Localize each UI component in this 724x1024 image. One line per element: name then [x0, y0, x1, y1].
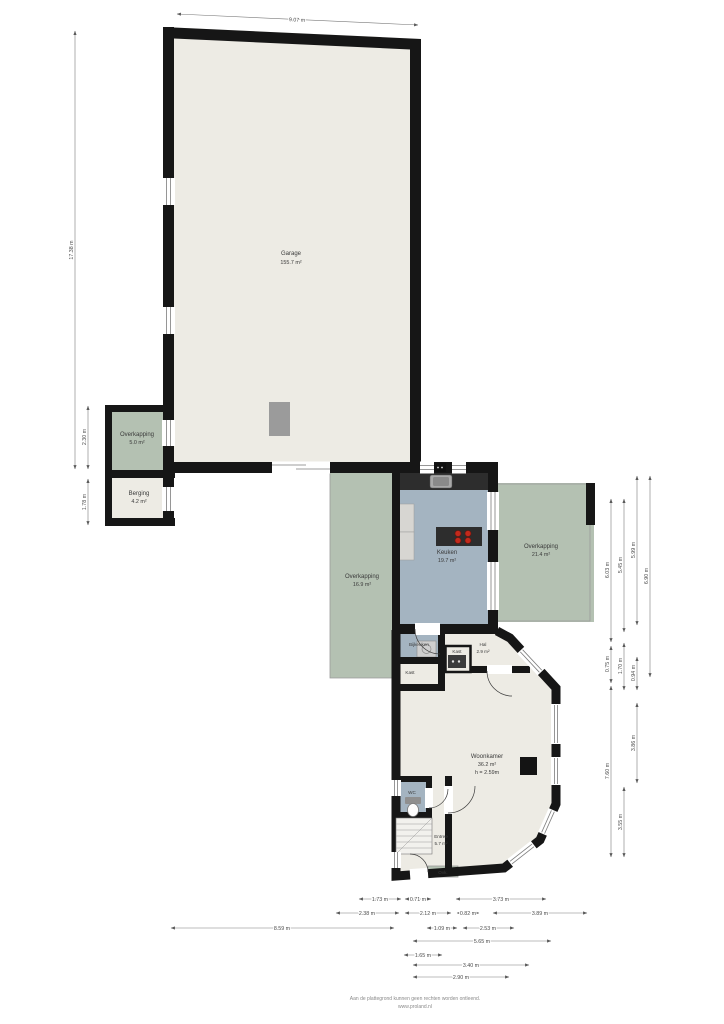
floor-plan-page: Garage 155.7 m² Overkapping 5.0 m² Bergi…: [0, 0, 724, 1024]
burner-icon: [465, 531, 471, 537]
dimension-top-width: 9.07 m: [177, 14, 418, 25]
svg-text:2.30 m: 2.30 m: [82, 428, 88, 445]
dimension-right-9: 6.90 m: [644, 476, 650, 677]
kitchen-cabinet-upper: [399, 504, 414, 532]
dimension-left-overkapping: 2.30 m: [82, 406, 88, 469]
svg-text:6.03 m: 6.03 m: [605, 561, 611, 578]
ovk-label: Ovk.: [438, 870, 447, 875]
dimension-right-7: 0.94 m: [631, 657, 637, 690]
entree-label: Entree: [434, 834, 448, 839]
svg-text:1.73 m: 1.73 m: [372, 897, 389, 903]
dimension-left-total: 17.38 m: [69, 31, 75, 469]
dimension-bottom-2: 3.73 m: [456, 897, 546, 903]
dimension-left-berging: 1.78 m: [82, 479, 88, 525]
keuken-label: Keuken: [437, 550, 457, 556]
wc-label: WC: [408, 790, 416, 795]
bijkeuken-label: Bijkeuken: [409, 642, 429, 647]
oven-knob: [458, 660, 460, 662]
dimension-right-5: 3.55 m: [618, 787, 624, 857]
burner-icon: [455, 531, 461, 537]
dimension-right-2: 7.60 m: [605, 686, 611, 857]
burner-icon: [465, 538, 471, 544]
stove-icon: [520, 757, 537, 775]
woonkamer-height: h = 2.59m: [475, 770, 500, 776]
svg-text:0.94 m: 0.94 m: [631, 664, 637, 681]
svg-text:5.45 m: 5.45 m: [618, 556, 624, 573]
svg-text:2.90 m: 2.90 m: [453, 975, 470, 981]
dimension-right-3: 5.45 m: [618, 499, 624, 632]
overkapping-mid-label: Overkapping: [345, 574, 379, 580]
dimension-bottom-11: 1.65 m: [404, 953, 442, 959]
burner-icon: [455, 538, 461, 544]
svg-text:5.99 m: 5.99 m: [631, 541, 637, 558]
hal-label: Hal: [480, 642, 487, 647]
berging-bottom-wall: [105, 518, 175, 526]
overkapping-small-label: Overkapping: [120, 432, 154, 438]
dimension-right-8: 3.86 m: [631, 703, 637, 783]
svg-text:17.38 m: 17.38 m: [69, 240, 75, 260]
garage-area: 155.7 m²: [280, 260, 301, 266]
svg-text:0.75 m: 0.75 m: [605, 655, 611, 672]
toilet-tank: [405, 797, 421, 804]
svg-text:6.90 m: 6.90 m: [644, 567, 650, 584]
svg-text:1.09 m: 1.09 m: [434, 926, 451, 932]
berging-room: [112, 478, 163, 518]
oven-knob: [452, 660, 454, 662]
entree-area: 5.7 m²: [434, 841, 447, 846]
kast-left-label: Kast: [405, 670, 415, 675]
dimension-bottom-5: 0.82 m: [457, 911, 479, 917]
svg-text:8.59 m: 8.59 m: [274, 926, 291, 932]
dimension-right-6: 5.99 m: [631, 476, 637, 625]
svg-text:5.65 m: 5.65 m: [474, 939, 491, 945]
svg-text:9.07 m: 9.07 m: [289, 17, 306, 24]
floor-plan: Garage 155.7 m² Overkapping 5.0 m² Bergi…: [0, 0, 724, 1024]
dimension-bottom-0: 1.73 m: [359, 897, 401, 903]
dimension-right-4: 1.70 m: [618, 643, 624, 690]
oven-icon: [448, 655, 466, 668]
dimension-bottom-3: 2.38 m: [336, 911, 399, 917]
footer: Aan de plattegrond kunnen geen rechten w…: [350, 996, 480, 1010]
dimension-bottom-9: 2.53 m: [463, 926, 514, 932]
overkapping-right-stub-wall: [586, 483, 595, 525]
svg-text:1.65 m: 1.65 m: [415, 953, 432, 959]
footer-disclaimer: Aan de plattegrond kunnen geen rechten w…: [350, 996, 480, 1002]
svg-text:2.12 m: 2.12 m: [420, 911, 437, 917]
bijkeuken-bottom-wall: [392, 657, 445, 664]
keuken-left-wall: [392, 473, 400, 632]
dimension-bottom-13: 2.90 m: [413, 975, 509, 981]
woonkamer-label: Woonkamer: [471, 754, 503, 760]
kast-mid-label: Kast: [452, 649, 462, 654]
svg-text:3.86 m: 3.86 m: [631, 734, 637, 751]
dimension-bottom-6: 3.89 m: [493, 911, 587, 917]
berging-area: 4.2 m²: [131, 499, 146, 505]
svg-text:7.60 m: 7.60 m: [605, 762, 611, 779]
garage-room: [163, 27, 421, 473]
overkapping-right-label: Overkapping: [524, 544, 558, 550]
garage-right-wall: [410, 39, 421, 473]
svg-text:3.73 m: 3.73 m: [493, 897, 510, 903]
sink-basin: [433, 477, 449, 486]
dimension-right-1: 0.75 m: [605, 646, 611, 683]
overkapping-mid-area: 16.9 m²: [353, 582, 371, 588]
toilet-bowl-icon: [408, 804, 419, 817]
svg-text:0.82 m: 0.82 m: [460, 911, 477, 917]
svg-text:1.70 m: 1.70 m: [618, 657, 624, 674]
hal-area: 2.9 m²: [476, 649, 489, 654]
overkapping-small-left-wall: [105, 405, 112, 526]
garage-left-wall: [163, 27, 174, 526]
svg-text:2.53 m: 2.53 m: [480, 926, 497, 932]
room-fills: [112, 27, 594, 878]
sliding-door: [272, 462, 330, 474]
svg-text:1.78 m: 1.78 m: [82, 493, 88, 510]
garage-mat: [269, 402, 290, 436]
garage-label: Garage: [281, 251, 302, 257]
keuken-area: 19.7 m²: [438, 558, 456, 564]
dimension-right-0: 6.03 m: [605, 499, 611, 642]
dimension-bottom-1: 0.71 m: [405, 897, 431, 903]
overkapping-small-top-wall: [105, 405, 163, 412]
berging-label: Berging: [129, 491, 150, 497]
svg-text:3.55 m: 3.55 m: [618, 813, 624, 830]
dimension-bottom-8: 1.09 m: [427, 926, 457, 932]
svg-text:3.89 m: 3.89 m: [532, 911, 549, 917]
kast-bottom-wall: [392, 684, 445, 691]
overkapping-small-area: 5.0 m²: [129, 440, 144, 446]
overkapping-right-area: 21.4 m²: [532, 552, 550, 558]
boiler-icon: [434, 463, 446, 472]
footer-website: www.proland.nl: [398, 1004, 432, 1010]
woonkamer-area: 36.2 m²: [478, 762, 496, 768]
dimension-bottom-4: 2.12 m: [405, 911, 451, 917]
garage-bottom-wall: [163, 462, 498, 473]
dimension-bottom-10: 5.65 m: [413, 939, 551, 945]
berging-top-wall: [105, 470, 175, 478]
svg-text:0.71 m: 0.71 m: [410, 897, 427, 903]
kitchen-cabinet-lower: [399, 532, 414, 560]
svg-text:2.38 m: 2.38 m: [359, 911, 376, 917]
dimension-bottom-12: 3.40 m: [413, 963, 529, 969]
stairs: [396, 818, 432, 854]
dimension-bottom-7: 8.59 m: [171, 926, 394, 932]
svg-text:3.40 m: 3.40 m: [463, 963, 480, 969]
